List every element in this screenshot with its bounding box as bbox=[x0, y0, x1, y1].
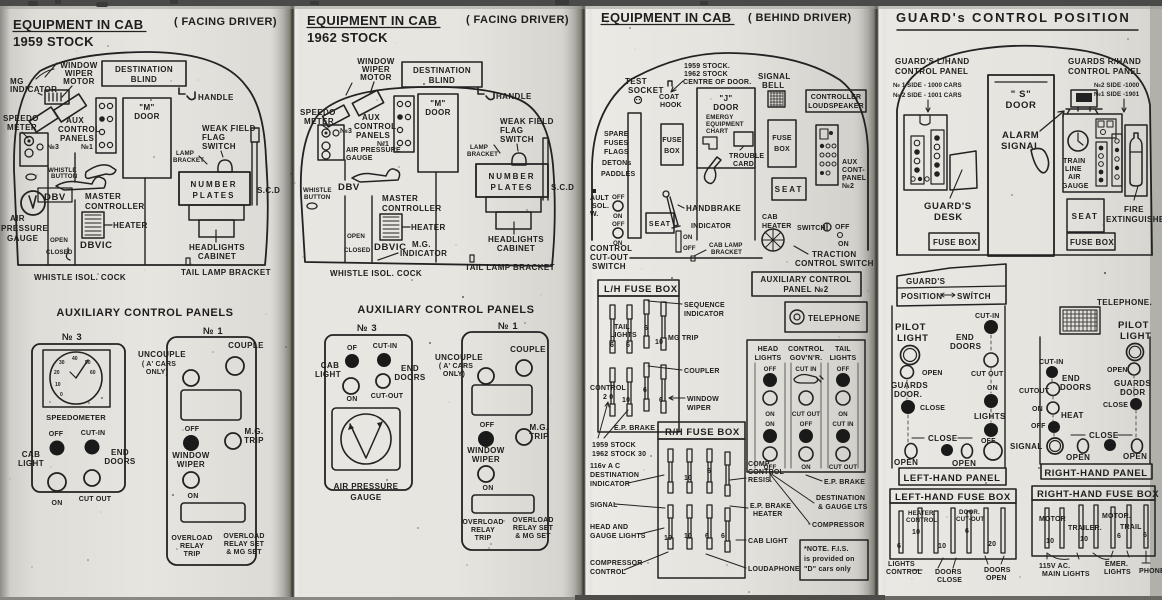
svg-text:HANDLE: HANDLE bbox=[198, 93, 234, 102]
svg-text:METER: METER bbox=[7, 123, 37, 132]
svg-text:OPEN: OPEN bbox=[1123, 452, 1147, 461]
svg-text:AUX: AUX bbox=[362, 113, 380, 122]
svg-text:WHISTLE ISOL. COCK: WHISTLE ISOL. COCK bbox=[330, 269, 422, 278]
svg-text:ON: ON bbox=[347, 396, 358, 403]
svg-text:MASTER: MASTER bbox=[382, 194, 418, 203]
svg-text:1959 STOCK.: 1959 STOCK. bbox=[684, 63, 730, 70]
svg-text:1962 STOCK: 1962 STOCK bbox=[307, 30, 388, 45]
svg-text:№2: №2 bbox=[842, 182, 854, 190]
svg-text:BELL: BELL bbox=[762, 81, 785, 90]
svg-text:CONTROL.: CONTROL. bbox=[906, 517, 939, 524]
svg-text:"J": "J" bbox=[719, 94, 732, 103]
svg-text:GAUGE: GAUGE bbox=[350, 493, 382, 502]
svg-text:WIPER: WIPER bbox=[177, 460, 205, 469]
svg-text:10: 10 bbox=[938, 543, 946, 550]
svg-text:"D" cars only: "D" cars only bbox=[804, 566, 851, 573]
svg-text:PLATES: PLATES bbox=[491, 183, 534, 192]
svg-text:OFF: OFF bbox=[683, 245, 696, 252]
svg-text:FLAG: FLAG bbox=[500, 126, 523, 135]
svg-text:INDICATOR: INDICATOR bbox=[590, 481, 630, 488]
svg-text:№2 SIDE -1000: №2 SIDE -1000 bbox=[1094, 82, 1140, 89]
svg-text:AUX: AUX bbox=[842, 159, 858, 166]
svg-text:EXTINGUISHER: EXTINGUISHER bbox=[1106, 215, 1162, 224]
svg-text:10: 10 bbox=[1080, 536, 1088, 543]
svg-text:6: 6 bbox=[644, 325, 648, 332]
svg-text:LINE: LINE bbox=[1065, 166, 1082, 173]
svg-text:TAIL: TAIL bbox=[835, 346, 851, 353]
svg-text:PANELS: PANELS bbox=[356, 131, 391, 140]
svg-text:MASTER: MASTER bbox=[85, 192, 121, 201]
svg-text:( FACING DRIVER): ( FACING DRIVER) bbox=[466, 14, 569, 26]
svg-text:GUARD'S: GUARD'S bbox=[924, 201, 972, 212]
svg-text:60: 60 bbox=[90, 370, 96, 376]
svg-text:50: 50 bbox=[85, 360, 91, 366]
svg-text:CUT-OUT: CUT-OUT bbox=[371, 393, 404, 400]
svg-text:TAIL: TAIL bbox=[614, 324, 630, 331]
svg-text:SIGNAL: SIGNAL bbox=[1010, 442, 1043, 451]
svg-text:WINDOW: WINDOW bbox=[172, 451, 210, 460]
svg-text:TELEPHONE: TELEPHONE bbox=[808, 314, 861, 323]
svg-text:PHONE: PHONE bbox=[1139, 568, 1162, 575]
svg-text:ON: ON bbox=[1032, 406, 1043, 413]
svg-text:EMERGY: EMERGY bbox=[706, 114, 734, 121]
svg-text:DESTINATION: DESTINATION bbox=[115, 65, 173, 74]
svg-text:LOUDSPEAKER: LOUDSPEAKER bbox=[808, 103, 864, 110]
svg-text:DOOR: DOOR bbox=[713, 103, 739, 112]
svg-text:CUT OUT: CUT OUT bbox=[971, 371, 1004, 378]
svg-text:PILOT: PILOT bbox=[895, 322, 926, 333]
svg-text:DBV: DBV bbox=[338, 182, 360, 193]
svg-text:10: 10 bbox=[55, 382, 61, 388]
svg-text:6: 6 bbox=[897, 543, 901, 550]
svg-text:AIR PRESSURE: AIR PRESSURE bbox=[346, 147, 401, 154]
svg-text:OF: OF bbox=[347, 345, 358, 352]
svg-text:( BEHIND DRIVER): ( BEHIND DRIVER) bbox=[748, 12, 852, 24]
svg-text:LAMP: LAMP bbox=[176, 150, 194, 157]
svg-text:2 0: 2 0 bbox=[603, 394, 613, 401]
svg-text:FUSES: FUSES bbox=[604, 140, 628, 147]
svg-text:FIRE: FIRE bbox=[1124, 205, 1144, 214]
svg-text:SEAT: SEAT bbox=[1072, 212, 1099, 221]
svg-text:CAB: CAB bbox=[22, 450, 41, 459]
svg-text:FUSE BOX: FUSE BOX bbox=[1070, 238, 1114, 247]
svg-text:SEAT: SEAT bbox=[775, 185, 804, 194]
svg-text:CUT IN: CUT IN bbox=[832, 421, 854, 428]
svg-text:OFF: OFF bbox=[764, 366, 777, 373]
svg-text:COUPLE: COUPLE bbox=[510, 345, 546, 354]
svg-text:DOORS: DOORS bbox=[104, 457, 136, 466]
svg-text:OFF: OFF bbox=[835, 224, 850, 231]
svg-text:S.C.D: S.C.D bbox=[551, 183, 574, 192]
svg-text:OVERLOAD: OVERLOAD bbox=[171, 535, 212, 542]
svg-text:M.G.: M.G. bbox=[412, 240, 431, 249]
svg-text:HEATER.: HEATER. bbox=[908, 510, 936, 517]
svg-text:CONTROL: CONTROL bbox=[354, 122, 396, 131]
svg-text:CONTROL PANEL: CONTROL PANEL bbox=[1068, 67, 1141, 76]
svg-text:BRACKET: BRACKET bbox=[711, 249, 742, 256]
svg-text:SIGNAL: SIGNAL bbox=[758, 72, 791, 81]
svg-text:AULT: AULT bbox=[590, 195, 609, 202]
svg-text:CUT-IN: CUT-IN bbox=[373, 343, 398, 350]
svg-text:CUT-OUT: CUT-OUT bbox=[590, 253, 628, 262]
svg-text:CLOSE: CLOSE bbox=[937, 577, 962, 584]
svg-text:GAUGE: GAUGE bbox=[7, 234, 39, 243]
svg-text:SWITCH: SWITCH bbox=[202, 142, 236, 151]
svg-text:SWITCH: SWITCH bbox=[797, 225, 826, 232]
svg-text:OPEN: OPEN bbox=[50, 237, 68, 244]
svg-text:M.G.: M.G. bbox=[530, 423, 549, 432]
svg-text:BRACKET: BRACKET bbox=[173, 157, 204, 164]
svg-text:MOTOR: MOTOR bbox=[360, 73, 392, 82]
svg-text:LIGHTS: LIGHTS bbox=[888, 561, 915, 568]
svg-text:UNCOUPLE: UNCOUPLE bbox=[138, 350, 186, 359]
svg-text:INDICATOR: INDICATOR bbox=[684, 311, 724, 318]
svg-text:OPEN: OPEN bbox=[952, 459, 976, 468]
svg-text:FUSE BOX: FUSE BOX bbox=[933, 238, 977, 247]
svg-text:CHART: CHART bbox=[706, 128, 728, 135]
svg-text:DOORS: DOORS bbox=[394, 373, 426, 382]
svg-text:OPEN: OPEN bbox=[347, 233, 365, 240]
svg-text:10: 10 bbox=[684, 533, 692, 540]
svg-text:GAUGE: GAUGE bbox=[346, 155, 373, 162]
svg-text:*NOTE. F.I.S.: *NOTE. F.I.S. bbox=[804, 546, 849, 553]
svg-text:M.G.: M.G. bbox=[245, 427, 264, 436]
svg-text:RIGHT-HAND FUSE BOX: RIGHT-HAND FUSE BOX bbox=[1037, 489, 1159, 500]
svg-text:BOX: BOX bbox=[774, 146, 790, 153]
svg-text:SPEEDOMETER: SPEEDOMETER bbox=[46, 413, 106, 422]
svg-text:GUARD'S L/HAND: GUARD'S L/HAND bbox=[895, 57, 970, 66]
svg-text:GUARD's CONTROL POSITION: GUARD's CONTROL POSITION bbox=[896, 10, 1131, 25]
svg-text:RELAY SET: RELAY SET bbox=[224, 541, 265, 548]
svg-text:EQUIPMENT: EQUIPMENT bbox=[706, 121, 744, 128]
svg-text:" S": " S" bbox=[1011, 89, 1031, 100]
svg-text:DOORS: DOORS bbox=[935, 569, 962, 576]
svg-text:CONTROL: CONTROL bbox=[590, 385, 627, 392]
svg-text:E.P. BRAKE: E.P. BRAKE bbox=[614, 425, 655, 432]
svg-text:№3: №3 bbox=[47, 143, 59, 151]
svg-text:AUXILIARY CONTROL: AUXILIARY CONTROL bbox=[760, 275, 851, 284]
svg-text:DESTINATION: DESTINATION bbox=[816, 495, 865, 502]
svg-text:0: 0 bbox=[60, 392, 63, 398]
svg-text:115V AC.: 115V AC. bbox=[1039, 563, 1070, 570]
svg-text:HANDBRAKE: HANDBRAKE bbox=[686, 204, 741, 213]
svg-text:EQUIPMENT IN CAB: EQUIPMENT IN CAB bbox=[13, 17, 143, 32]
svg-text:OPEN: OPEN bbox=[1107, 367, 1128, 374]
svg-text:FLAGS: FLAGS bbox=[604, 149, 629, 156]
svg-text:E.P. BRAKE: E.P. BRAKE bbox=[824, 479, 865, 486]
svg-text:DBVIC: DBVIC bbox=[80, 240, 113, 251]
svg-text:WEAK FIELD: WEAK FIELD bbox=[202, 124, 256, 133]
svg-text:CLOSED: CLOSED bbox=[46, 249, 73, 256]
svg-text:PANELS: PANELS bbox=[60, 134, 95, 143]
svg-text:WIPER: WIPER bbox=[687, 405, 711, 412]
svg-text:SEQUENCE: SEQUENCE bbox=[684, 302, 725, 309]
svg-text:6: 6 bbox=[1117, 533, 1121, 540]
svg-text:CUT OUT: CUT OUT bbox=[792, 411, 820, 418]
svg-text:LIGHT: LIGHT bbox=[1120, 331, 1152, 342]
svg-text:OFF: OFF bbox=[800, 421, 813, 428]
svg-text:CUT-IN: CUT-IN bbox=[1039, 359, 1064, 366]
svg-text:CABINET: CABINET bbox=[198, 252, 236, 261]
svg-text:6: 6 bbox=[643, 387, 647, 394]
svg-text:WIPER: WIPER bbox=[472, 455, 500, 464]
svg-text:EMER.: EMER. bbox=[1105, 561, 1128, 568]
svg-text:"M": "M" bbox=[139, 103, 154, 112]
svg-text:20: 20 bbox=[54, 370, 60, 376]
svg-text:1962 STOCK 30: 1962 STOCK 30 bbox=[592, 451, 646, 458]
svg-text:PRESSURE: PRESSURE bbox=[1, 224, 48, 233]
svg-text:10: 10 bbox=[622, 397, 630, 404]
svg-text:HEATER: HEATER bbox=[753, 511, 782, 518]
svg-text:COMPRESSOR: COMPRESSOR bbox=[812, 522, 865, 529]
svg-text:FLAG: FLAG bbox=[202, 133, 225, 142]
svg-text:OFF: OFF bbox=[764, 464, 777, 471]
svg-text:1959 STOCK: 1959 STOCK bbox=[13, 34, 94, 49]
svg-text:TRAIL: TRAIL bbox=[1120, 524, 1142, 531]
svg-text:GAUGE LIGHTS: GAUGE LIGHTS bbox=[590, 533, 646, 540]
svg-text:UNCOUPLE: UNCOUPLE bbox=[435, 353, 483, 362]
svg-text:EQUIPMENT IN CAB: EQUIPMENT IN CAB bbox=[307, 13, 437, 28]
svg-text:GUARDS R/HAND: GUARDS R/HAND bbox=[1068, 57, 1141, 66]
svg-text:TRACTION: TRACTION bbox=[812, 250, 857, 259]
svg-text:DOOR.: DOOR. bbox=[894, 390, 922, 399]
svg-text:RELAY SET: RELAY SET bbox=[513, 525, 554, 532]
svg-text:CARD: CARD bbox=[733, 161, 754, 168]
svg-text:№ 1: № 1 bbox=[203, 326, 223, 337]
svg-text:LIGHTS: LIGHTS bbox=[1104, 569, 1131, 576]
svg-text:LAMP: LAMP bbox=[470, 144, 488, 151]
svg-text:NUMBER: NUMBER bbox=[488, 172, 535, 181]
svg-text:30: 30 bbox=[59, 360, 65, 366]
svg-text:AIR: AIR bbox=[10, 214, 25, 223]
svg-text:PLATES: PLATES bbox=[193, 191, 236, 200]
svg-text:OFF: OFF bbox=[837, 366, 850, 373]
svg-text:CONTROL: CONTROL bbox=[590, 569, 627, 576]
svg-text:CLOSE: CLOSE bbox=[920, 405, 945, 412]
svg-text:FUSE: FUSE bbox=[662, 137, 682, 144]
svg-text:HEAT: HEAT bbox=[1061, 411, 1084, 420]
svg-text:10: 10 bbox=[655, 339, 663, 346]
svg-text:HEADLIGHTS: HEADLIGHTS bbox=[189, 243, 245, 252]
svg-text:INDICATOR: INDICATOR bbox=[400, 249, 447, 258]
svg-text:10: 10 bbox=[664, 535, 672, 542]
svg-text:40: 40 bbox=[72, 356, 78, 362]
svg-text:DOORS: DOORS bbox=[950, 342, 982, 351]
svg-text:HANDLE: HANDLE bbox=[496, 92, 532, 101]
svg-text:LIGHTS: LIGHTS bbox=[755, 355, 782, 362]
svg-text:CONTROLLER: CONTROLLER bbox=[811, 94, 862, 101]
svg-text:TEST: TEST bbox=[625, 77, 647, 86]
svg-text:DETONs: DETONs bbox=[602, 160, 631, 167]
svg-text:FUSE: FUSE bbox=[772, 135, 792, 142]
svg-text:CAB: CAB bbox=[762, 214, 778, 221]
svg-text:L/H FUSE BOX: L/H FUSE BOX bbox=[604, 284, 678, 295]
svg-text:GOV'N'R.: GOV'N'R. bbox=[790, 355, 823, 362]
svg-text:ON: ON bbox=[801, 464, 811, 471]
svg-text:SPEEDO: SPEEDO bbox=[300, 108, 336, 117]
svg-text:HEATER: HEATER bbox=[411, 223, 446, 232]
svg-text:№1 SIDE -1901: №1 SIDE -1901 bbox=[1094, 91, 1140, 98]
svg-text:LIGHT: LIGHT bbox=[18, 459, 44, 468]
svg-text:PANEL №2: PANEL №2 bbox=[783, 285, 828, 294]
svg-text:( FACING DRIVER): ( FACING DRIVER) bbox=[174, 16, 277, 28]
svg-text:NUMBER: NUMBER bbox=[190, 180, 237, 189]
svg-text:WEAK FIELD: WEAK FIELD bbox=[500, 117, 554, 126]
svg-text:CAB: CAB bbox=[321, 361, 340, 370]
svg-text:6: 6 bbox=[705, 533, 709, 540]
svg-text:LIGHTS: LIGHTS bbox=[974, 412, 1006, 421]
svg-text:OVERLOAD: OVERLOAD bbox=[512, 517, 553, 524]
svg-text:ON: ON bbox=[765, 411, 775, 418]
svg-text:CLOSE: CLOSE bbox=[1089, 431, 1119, 440]
svg-text:EQUIPMENT IN CAB: EQUIPMENT IN CAB bbox=[601, 10, 731, 25]
svg-text:20: 20 bbox=[988, 541, 996, 548]
svg-text:AUXILIARY CONTROL PANELS: AUXILIARY CONTROL PANELS bbox=[56, 307, 233, 319]
svg-text:6: 6 bbox=[965, 528, 969, 535]
svg-text:CABINET: CABINET bbox=[497, 244, 535, 253]
svg-text:HEAD AND: HEAD AND bbox=[590, 524, 628, 531]
svg-text:CUTOUT: CUTOUT bbox=[1019, 388, 1050, 395]
svg-text:DESTINATION: DESTINATION bbox=[590, 472, 639, 479]
svg-text:PILOT: PILOT bbox=[1118, 320, 1149, 331]
svg-text:GUARDS: GUARDS bbox=[1114, 379, 1151, 388]
svg-text:№3: №3 bbox=[340, 127, 352, 135]
svg-text:WHISTLE ISOL. COCK: WHISTLE ISOL. COCK bbox=[34, 273, 126, 282]
svg-text:MAIN LIGHTS: MAIN LIGHTS bbox=[1042, 571, 1090, 578]
svg-text:6: 6 bbox=[626, 342, 630, 349]
svg-text:CONT-: CONT- bbox=[842, 167, 865, 174]
svg-text:OPEN: OPEN bbox=[986, 575, 1007, 582]
svg-text:DOOR: DOOR bbox=[1006, 100, 1037, 111]
svg-text:CONTROL: CONTROL bbox=[590, 244, 632, 253]
svg-text:( A' CARS: ( A' CARS bbox=[439, 363, 473, 370]
svg-text:POSITION: POSITION bbox=[901, 292, 942, 301]
svg-text:END: END bbox=[401, 364, 419, 373]
svg-text:HOOK: HOOK bbox=[660, 102, 682, 109]
svg-text:CUT OUT: CUT OUT bbox=[79, 496, 112, 503]
svg-text:INDICATOR: INDICATOR bbox=[691, 223, 731, 230]
svg-text:CLOSE: CLOSE bbox=[928, 434, 958, 443]
svg-text:COUPLE: COUPLE bbox=[228, 341, 264, 350]
svg-text:DOORS: DOORS bbox=[1060, 383, 1092, 392]
svg-text:SWITCH: SWITCH bbox=[500, 135, 534, 144]
svg-text:MOTOR.: MOTOR. bbox=[1102, 513, 1131, 520]
svg-text:DOOR.: DOOR. bbox=[959, 509, 980, 516]
svg-text:& MG SET: & MG SET bbox=[226, 549, 262, 556]
svg-text:RELAY: RELAY bbox=[180, 543, 204, 550]
svg-text:ON: ON bbox=[188, 493, 199, 500]
svg-text:CAB LIGHT: CAB LIGHT bbox=[748, 538, 788, 545]
svg-text:COUPLER: COUPLER bbox=[684, 368, 720, 375]
svg-text:TRAILER.: TRAILER. bbox=[1068, 525, 1102, 532]
svg-text:OFF: OFF bbox=[612, 194, 625, 201]
svg-text:CLOSED: CLOSED bbox=[344, 247, 371, 254]
svg-text:SIGNAL: SIGNAL bbox=[1001, 141, 1041, 152]
svg-text:CUT-IN: CUT-IN bbox=[975, 313, 1000, 320]
svg-text:ON: ON bbox=[683, 234, 693, 241]
svg-text:MG TRIP: MG TRIP bbox=[668, 335, 699, 342]
svg-text:TAIL LAMP BRACKET: TAIL LAMP BRACKET bbox=[465, 263, 555, 272]
svg-text:GUARDS: GUARDS bbox=[891, 381, 928, 390]
svg-text:OFF: OFF bbox=[612, 221, 625, 228]
svg-text:LIGHT: LIGHT bbox=[315, 370, 341, 379]
svg-text:1962 STOCK: 1962 STOCK bbox=[684, 71, 728, 78]
svg-text:SOL.: SOL. bbox=[592, 203, 609, 210]
svg-text:CUT-IN: CUT-IN bbox=[81, 430, 106, 437]
svg-text:GUARD'S: GUARD'S bbox=[906, 277, 946, 286]
svg-text:ON: ON bbox=[987, 385, 998, 392]
svg-text:ON: ON bbox=[838, 241, 849, 248]
svg-text:6: 6 bbox=[707, 468, 711, 475]
svg-text:OFF: OFF bbox=[185, 426, 200, 433]
svg-text:CLOSE: CLOSE bbox=[1103, 402, 1128, 409]
svg-text:№ 1: № 1 bbox=[498, 321, 518, 332]
svg-text:"M": "M" bbox=[430, 99, 445, 108]
svg-text:COAT: COAT bbox=[659, 94, 680, 101]
svg-text:6: 6 bbox=[659, 397, 663, 404]
svg-text:CENTRE OF DOOR.: CENTRE OF DOOR. bbox=[683, 79, 751, 86]
svg-text:CONTROLLER: CONTROLLER bbox=[85, 202, 145, 211]
svg-text:DOOR: DOOR bbox=[425, 108, 451, 117]
svg-text:CONTROL: CONTROL bbox=[58, 125, 100, 134]
svg-text:SWITCH: SWITCH bbox=[957, 292, 991, 301]
svg-text:E.P. BRAKE: E.P. BRAKE bbox=[750, 503, 791, 510]
svg-text:MOTOR: MOTOR bbox=[63, 77, 95, 86]
svg-text:TRIP: TRIP bbox=[184, 551, 201, 558]
svg-text:CONTROLLER: CONTROLLER bbox=[382, 204, 442, 213]
svg-text:LIGHT: LIGHT bbox=[897, 333, 929, 344]
svg-text:OPEN: OPEN bbox=[1066, 453, 1090, 462]
svg-text:ONLY): ONLY) bbox=[146, 369, 168, 376]
svg-text:END: END bbox=[1062, 374, 1080, 383]
svg-text:HEATER: HEATER bbox=[113, 221, 148, 230]
svg-text:TELEPHONE.: TELEPHONE. bbox=[1097, 298, 1152, 307]
svg-text:№ 2 SIDE - 1001 CARS: № 2 SIDE - 1001 CARS bbox=[893, 92, 962, 99]
svg-text:BOX: BOX bbox=[664, 148, 680, 155]
svg-text:DOOR: DOOR bbox=[134, 112, 160, 121]
svg-text:WINDOW: WINDOW bbox=[687, 396, 719, 403]
svg-text:CUT IN: CUT IN bbox=[795, 366, 817, 373]
svg-text:DOORS: DOORS bbox=[984, 567, 1011, 574]
svg-text:CAB LAMP: CAB LAMP bbox=[709, 242, 742, 249]
svg-text:DESK: DESK bbox=[934, 212, 963, 223]
svg-text:10: 10 bbox=[1046, 538, 1054, 545]
svg-text:LOUDAPHONE: LOUDAPHONE bbox=[748, 566, 800, 573]
svg-text:is provided on: is provided on bbox=[804, 556, 855, 563]
svg-text:AIR: AIR bbox=[1068, 174, 1081, 181]
svg-text:OFF: OFF bbox=[49, 431, 64, 438]
svg-text:ON: ON bbox=[613, 213, 623, 220]
svg-text:DOOR: DOOR bbox=[1120, 388, 1146, 397]
svg-text:W.: W. bbox=[590, 211, 599, 218]
svg-text:LIGHTS: LIGHTS bbox=[610, 332, 637, 339]
svg-text:CUT-OUT: CUT-OUT bbox=[956, 516, 984, 523]
svg-text:116v A C: 116v A C bbox=[590, 463, 620, 470]
svg-text:CUT OUT: CUT OUT bbox=[829, 464, 857, 471]
svg-text:ON: ON bbox=[765, 421, 775, 428]
svg-text:& MG SET: & MG SET bbox=[515, 533, 551, 540]
svg-text:SPARE: SPARE bbox=[604, 131, 629, 138]
svg-text:SPEEDO: SPEEDO bbox=[3, 114, 39, 123]
svg-text:OVERLOAD: OVERLOAD bbox=[223, 533, 264, 540]
svg-text:OPEN: OPEN bbox=[922, 370, 943, 377]
svg-text:( A' CARS: ( A' CARS bbox=[142, 361, 176, 368]
svg-text:S.C.D: S.C.D bbox=[257, 186, 280, 195]
svg-text:6: 6 bbox=[1143, 532, 1147, 539]
svg-text:PADDLES: PADDLES bbox=[601, 171, 635, 178]
svg-text:6: 6 bbox=[610, 342, 614, 349]
svg-text:R/H FUSE BOX: R/H FUSE BOX bbox=[665, 427, 740, 438]
